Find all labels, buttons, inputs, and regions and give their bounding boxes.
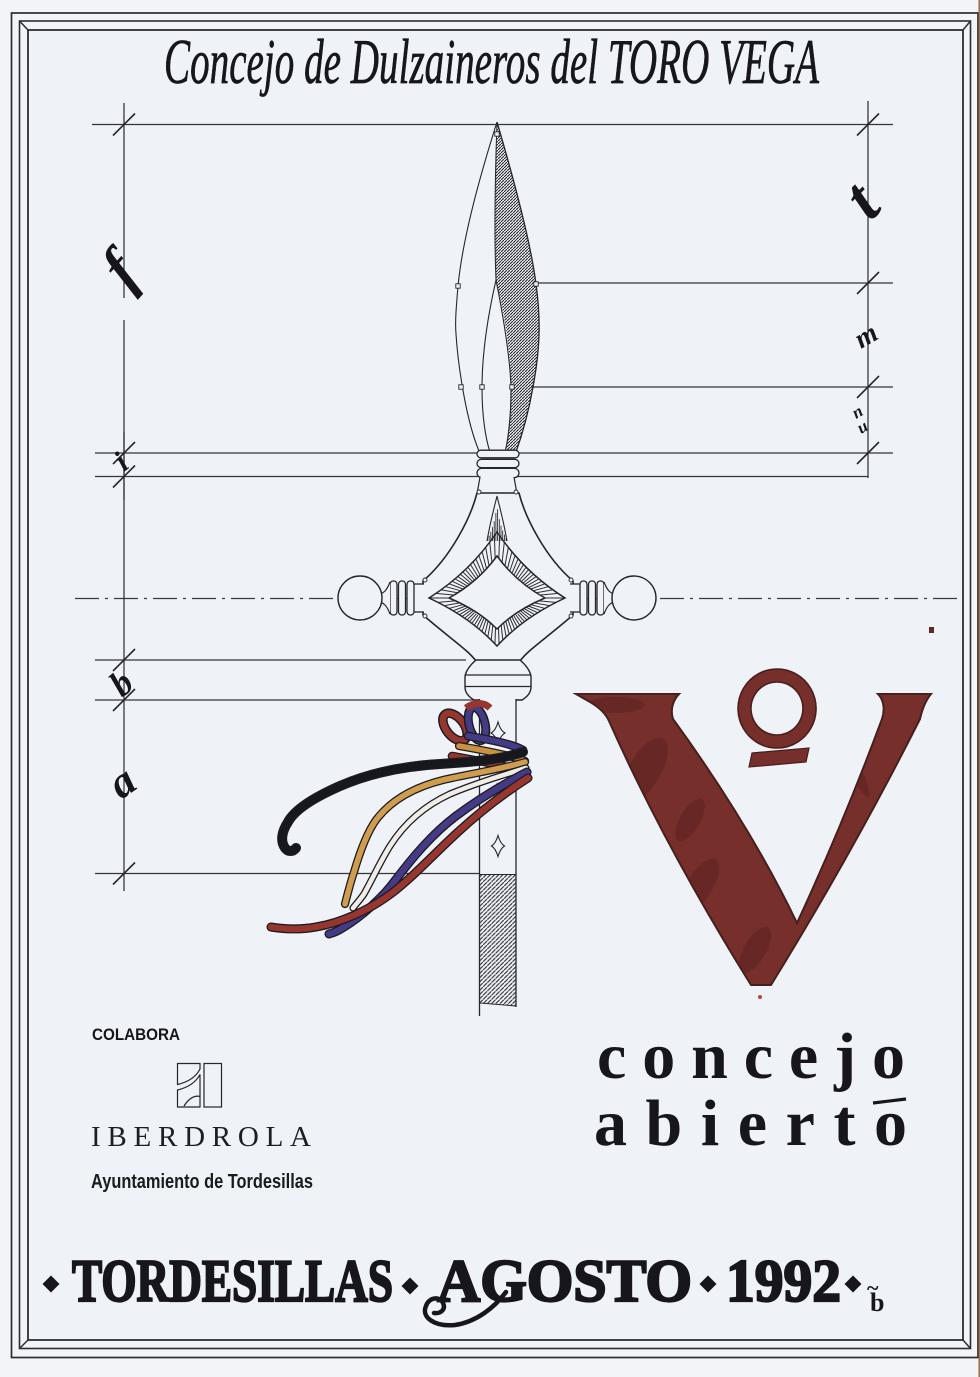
- svg-text:AGOSTO: AGOSTO: [437, 1248, 692, 1314]
- svg-text:TORDESILLAS: TORDESILLAS: [72, 1248, 393, 1314]
- svg-text:Ayuntamiento de Tordesillas: Ayuntamiento de Tordesillas: [91, 1171, 313, 1193]
- svg-text:IBERDROLA: IBERDROLA: [91, 1121, 311, 1153]
- svg-text:COLABORA: COLABORA: [92, 1025, 180, 1044]
- svg-text:1992: 1992: [726, 1248, 841, 1314]
- svg-text:Concejo de Dulzaineros del TOR: Concejo de Dulzaineros del TORO VEGA: [164, 26, 820, 97]
- svg-text:b: b: [870, 1288, 884, 1317]
